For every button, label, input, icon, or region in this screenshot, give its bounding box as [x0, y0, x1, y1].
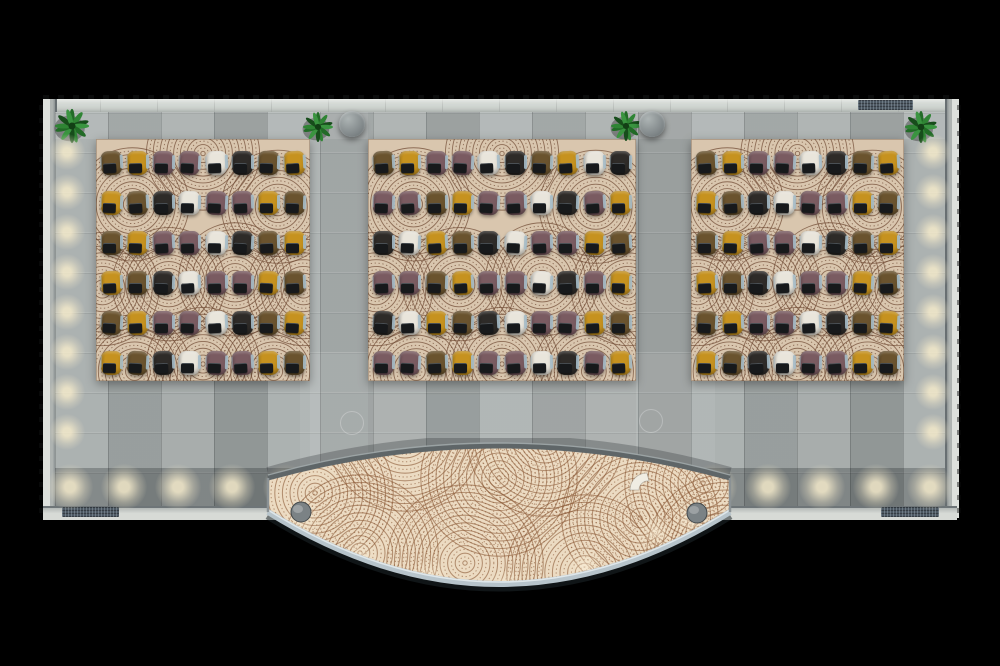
armchair-B	[722, 271, 743, 295]
armrest	[877, 356, 879, 368]
armchair-Y	[696, 191, 718, 216]
entrance-mat	[881, 507, 939, 517]
armrest	[303, 275, 306, 289]
wall-light-glow	[915, 414, 951, 450]
tablet-arm	[375, 283, 388, 293]
armrest	[277, 275, 281, 289]
wall-light-glow	[915, 334, 951, 370]
tablet-arm	[586, 203, 600, 214]
armrest	[372, 236, 374, 248]
armrest	[230, 235, 233, 247]
armrest	[695, 236, 697, 248]
tablet-arm	[802, 163, 815, 173]
tablet-arm	[775, 163, 789, 174]
armchair-W	[179, 191, 200, 215]
armrest	[231, 156, 233, 168]
armrest	[224, 275, 227, 289]
armchair-Y	[101, 271, 123, 296]
armrest	[120, 355, 123, 369]
armrest	[793, 315, 796, 329]
tablet-arm	[428, 323, 441, 333]
floor-inlay-circle	[639, 409, 663, 433]
tablet-arm	[750, 323, 763, 333]
armrest	[503, 196, 505, 208]
armrest	[550, 195, 553, 209]
armchair-M	[826, 271, 847, 295]
armrest	[602, 194, 606, 208]
tablet-arm	[181, 363, 194, 373]
armchair-Y	[101, 351, 122, 375]
armchair-M	[399, 350, 421, 375]
armchair-M	[799, 190, 821, 215]
wall-light-glow	[47, 464, 93, 510]
armrest	[793, 355, 796, 369]
armchair-B	[258, 311, 279, 335]
armchair-Y	[696, 271, 718, 296]
armrest	[471, 355, 474, 369]
armrest	[773, 236, 775, 248]
armchair-M	[584, 271, 605, 295]
armrest	[741, 275, 744, 289]
armrest	[741, 155, 744, 169]
tablet-arm	[103, 243, 116, 253]
tablet-arm	[129, 203, 143, 214]
tablet-arm	[612, 243, 626, 254]
armrest	[277, 195, 280, 209]
tablet-arm	[103, 283, 116, 293]
tablet-arm	[750, 203, 763, 213]
tablet-arm	[453, 163, 467, 174]
tablet-arm	[507, 203, 520, 213]
armchair-M	[205, 351, 227, 376]
armchair-M	[504, 350, 526, 375]
armrest	[767, 275, 770, 289]
armrest	[556, 236, 558, 248]
armchair-B	[852, 311, 873, 335]
tablet-arm	[286, 243, 299, 253]
armchair-Y	[399, 151, 420, 175]
armrest	[303, 195, 306, 209]
reception-desk	[255, 438, 735, 608]
armrest	[747, 356, 749, 368]
armrest	[425, 316, 427, 328]
armrest	[372, 276, 374, 288]
armrest	[877, 157, 880, 169]
tablet-arm	[750, 163, 763, 173]
tablet-arm	[559, 163, 573, 174]
tablet-arm	[724, 163, 737, 173]
armrest	[283, 236, 285, 248]
tablet-arm	[880, 243, 893, 253]
armrest	[257, 316, 259, 328]
tablet-arm	[880, 203, 893, 213]
armrest	[283, 276, 285, 288]
armchair-Y	[877, 150, 899, 175]
armchair-W	[504, 230, 526, 255]
wall-light-glow	[907, 464, 953, 510]
armchair-M	[557, 231, 578, 255]
armrest	[372, 356, 374, 368]
tablet-arm	[285, 323, 299, 334]
tablet-arm	[585, 243, 598, 253]
tablet-arm	[697, 323, 711, 334]
armrest	[602, 355, 606, 369]
wall-light-glow	[209, 464, 255, 510]
render-canvas	[0, 0, 1000, 666]
tablet-arm	[207, 243, 220, 253]
armchair-B	[100, 310, 122, 335]
tablet-arm	[698, 163, 712, 174]
armrest	[851, 236, 853, 248]
armrest	[524, 315, 527, 329]
armrest	[230, 357, 233, 369]
armchair-Y	[258, 351, 279, 375]
tablet-arm	[155, 363, 168, 373]
rug-pattern	[368, 139, 636, 381]
armchair-B	[127, 271, 148, 295]
tablet-arm	[506, 283, 519, 293]
tablet-arm	[427, 163, 440, 173]
armchair-M	[504, 271, 525, 295]
armchair-M	[800, 271, 821, 295]
armrest	[524, 155, 527, 169]
tablet-arm	[454, 283, 468, 294]
armchair-M	[747, 230, 769, 255]
armchair-M	[425, 151, 446, 175]
armrest	[100, 236, 102, 248]
armchair-W	[205, 310, 227, 335]
armrest	[530, 236, 532, 248]
armrest	[120, 275, 123, 289]
tablet-arm	[129, 243, 142, 253]
armrest	[550, 355, 553, 369]
armrest	[819, 155, 822, 169]
armchair-M	[478, 271, 499, 295]
armrest	[747, 156, 749, 168]
armrest	[126, 197, 129, 209]
armchair-Y	[284, 231, 305, 255]
tablet-arm	[102, 323, 116, 334]
armchair-M	[773, 150, 795, 175]
armchair-D	[748, 191, 769, 215]
armrest	[392, 275, 395, 289]
armchair-D	[153, 271, 175, 296]
armrest	[424, 237, 427, 249]
armchair-D	[373, 231, 394, 255]
armrest	[576, 235, 579, 249]
armchair-B	[425, 351, 447, 376]
tablet-arm	[724, 323, 737, 333]
armchair-M	[583, 190, 605, 215]
tablet-arm	[181, 163, 195, 174]
armchair-W	[530, 270, 552, 295]
armchair-B	[878, 191, 900, 216]
armrest	[172, 315, 175, 329]
armchair-D	[231, 311, 252, 335]
armrest	[444, 234, 448, 248]
armrest	[871, 355, 874, 369]
armchair-Y	[722, 231, 744, 256]
armchair-D	[372, 310, 394, 335]
tablet-arm	[854, 163, 867, 173]
armchair-D	[826, 151, 847, 175]
armchair-Y	[452, 191, 473, 215]
armchair-M	[399, 190, 421, 215]
tablet-arm	[480, 203, 494, 214]
armchair-D	[748, 351, 770, 376]
armchair-M	[478, 190, 500, 215]
armrest	[204, 156, 206, 168]
armchair-B	[101, 231, 122, 255]
armchair-W	[399, 311, 421, 336]
armchair-W	[205, 151, 227, 176]
tablet-arm	[208, 323, 222, 334]
armrest	[825, 276, 827, 288]
armrest	[715, 355, 718, 369]
tablet-arm	[375, 203, 388, 213]
tablet-arm	[428, 203, 441, 213]
armchair-Y	[851, 270, 873, 295]
armrest	[100, 157, 103, 169]
armchair-D	[478, 310, 500, 335]
tablet-arm	[585, 363, 599, 374]
armrest	[146, 315, 149, 329]
armrest	[721, 197, 724, 209]
armrest	[767, 315, 770, 329]
tablet-arm	[234, 323, 247, 333]
tablet-arm	[698, 203, 711, 213]
armrest	[747, 196, 749, 208]
armrest	[204, 195, 207, 207]
armrest	[721, 156, 723, 168]
tablet-arm	[129, 283, 142, 293]
armchair-D	[557, 191, 579, 216]
armrest	[582, 236, 584, 248]
armrest	[609, 237, 612, 249]
armrest	[445, 315, 448, 329]
armrest	[825, 357, 828, 369]
tablet-arm	[828, 163, 841, 173]
armchair-Y	[877, 310, 899, 335]
wall-light-glow	[799, 464, 845, 510]
tablet-arm	[401, 243, 414, 253]
armchair-W	[800, 231, 821, 255]
armchair-Y	[610, 351, 632, 376]
armchair-W	[399, 231, 421, 256]
wall-light-glow	[155, 464, 201, 510]
tablet-arm	[828, 323, 841, 333]
armrest	[819, 235, 822, 249]
armchair-D	[610, 151, 631, 175]
tablet-arm	[802, 243, 815, 253]
armrest	[146, 275, 149, 289]
armchair-D	[557, 351, 578, 375]
armrest	[100, 356, 102, 368]
tablet-arm	[480, 363, 493, 373]
armrest	[152, 356, 154, 368]
armchair-M	[826, 191, 848, 216]
armchair-M	[153, 230, 175, 255]
armchair-B	[452, 311, 474, 336]
wall-light-glow	[915, 374, 951, 410]
armrest	[767, 155, 770, 169]
tablet-arm	[698, 363, 711, 373]
armrest	[871, 235, 874, 249]
tablet-arm	[801, 203, 815, 214]
armchair-M	[231, 271, 252, 295]
armrest	[277, 355, 280, 369]
armchair-M	[557, 310, 579, 335]
armchair-M	[774, 311, 796, 336]
armrest	[877, 236, 879, 248]
armrest	[152, 316, 154, 328]
tablet-arm	[880, 283, 893, 293]
armrest	[178, 356, 180, 368]
tablet-arm	[698, 243, 711, 253]
tablet-arm	[234, 363, 248, 374]
armrest	[277, 315, 280, 329]
armrest	[603, 275, 606, 289]
tablet-arm	[828, 283, 841, 293]
armrest	[609, 196, 611, 208]
armrest	[897, 275, 900, 289]
armchair-B	[695, 310, 717, 335]
tablet-arm	[234, 203, 247, 213]
floor-inlay-circle	[340, 411, 364, 435]
armrest	[224, 355, 227, 369]
wall-light-glow	[49, 414, 85, 450]
armrest	[451, 196, 453, 208]
armrest	[799, 236, 801, 248]
armchair-B	[852, 231, 874, 256]
entrance-mat	[858, 100, 913, 110]
tablet-arm	[750, 243, 764, 254]
tablet-arm	[506, 243, 520, 254]
tablet-arm	[880, 363, 893, 373]
armchair-B	[852, 151, 874, 176]
armchair-W	[800, 151, 822, 176]
armchair-M	[153, 151, 174, 175]
tablet-arm	[401, 283, 414, 293]
potted-plant	[52, 106, 92, 146]
armrest	[799, 156, 801, 168]
armrest	[503, 357, 506, 369]
tablet-arm	[724, 243, 737, 253]
armrest	[695, 276, 697, 288]
armchair-M	[399, 271, 420, 295]
armrest	[250, 235, 254, 249]
tablet-arm	[507, 163, 520, 173]
armrest	[583, 156, 585, 168]
armrest	[257, 236, 259, 248]
armchair-M	[531, 311, 552, 335]
armchair-M	[748, 311, 769, 335]
tablet-arm	[533, 203, 546, 213]
armchair-M	[478, 351, 500, 376]
armchair-B	[372, 150, 394, 175]
wall-light-glow	[49, 254, 85, 290]
armchair-B	[531, 151, 553, 176]
armchair-M	[153, 311, 174, 335]
armrest	[629, 275, 632, 289]
tablet-arm	[234, 163, 247, 173]
armrest	[629, 355, 632, 369]
tablet-arm	[260, 363, 273, 373]
tablet-arm	[854, 203, 867, 213]
tablet-arm	[103, 163, 117, 174]
armrest	[582, 197, 585, 209]
armrest	[372, 157, 375, 169]
armchair-D	[825, 230, 847, 255]
armchair-M	[451, 150, 473, 175]
wall-light-glow	[49, 294, 85, 330]
armrest	[871, 315, 874, 329]
armrest	[504, 316, 506, 328]
tablet-arm	[286, 163, 300, 174]
armrest	[845, 155, 848, 169]
armrest	[425, 196, 427, 208]
tablet-arm	[286, 283, 299, 293]
armchair-W	[799, 310, 821, 335]
tablet-arm	[207, 363, 220, 373]
armchair-B	[127, 190, 149, 215]
armrest	[629, 315, 632, 329]
tablet-arm	[155, 163, 168, 173]
armchair-W	[531, 191, 552, 215]
armrest	[582, 316, 584, 328]
armrest	[851, 196, 853, 208]
tablet-arm	[401, 163, 414, 173]
tablet-arm	[750, 363, 763, 373]
armrest	[224, 314, 228, 328]
armrest	[250, 195, 253, 209]
armchair-W	[774, 191, 795, 215]
armrest	[392, 235, 395, 249]
armrest	[629, 155, 632, 169]
tablet-arm	[129, 363, 143, 374]
plant-leaves	[52, 106, 92, 146]
armrest	[277, 155, 280, 169]
armchair-Y	[425, 230, 447, 255]
armrest	[424, 356, 426, 368]
armchair-Y	[101, 191, 123, 216]
armchair-W	[205, 231, 226, 255]
tablet-arm	[559, 363, 572, 373]
armchair-B	[610, 311, 631, 335]
tablet-arm	[612, 203, 625, 213]
tablet-arm	[480, 243, 493, 253]
armchair-M	[825, 350, 847, 375]
armrest	[126, 316, 128, 328]
armrest	[444, 355, 447, 369]
rug-pattern	[691, 139, 904, 381]
armrest	[695, 356, 697, 368]
armrest	[257, 196, 259, 208]
armrest	[609, 316, 611, 328]
tablet-arm	[776, 283, 790, 294]
armchair-Y	[283, 150, 305, 175]
armchair-Y	[722, 311, 744, 336]
armchair-B	[721, 350, 743, 375]
wall-light-glow	[49, 174, 85, 210]
armchair-B	[878, 351, 899, 375]
tablet-arm	[880, 163, 894, 174]
armrest	[392, 195, 395, 209]
tablet-arm	[401, 363, 415, 374]
armchair-D	[505, 151, 526, 175]
tablet-arm	[879, 323, 893, 334]
tablet-arm	[233, 243, 247, 254]
